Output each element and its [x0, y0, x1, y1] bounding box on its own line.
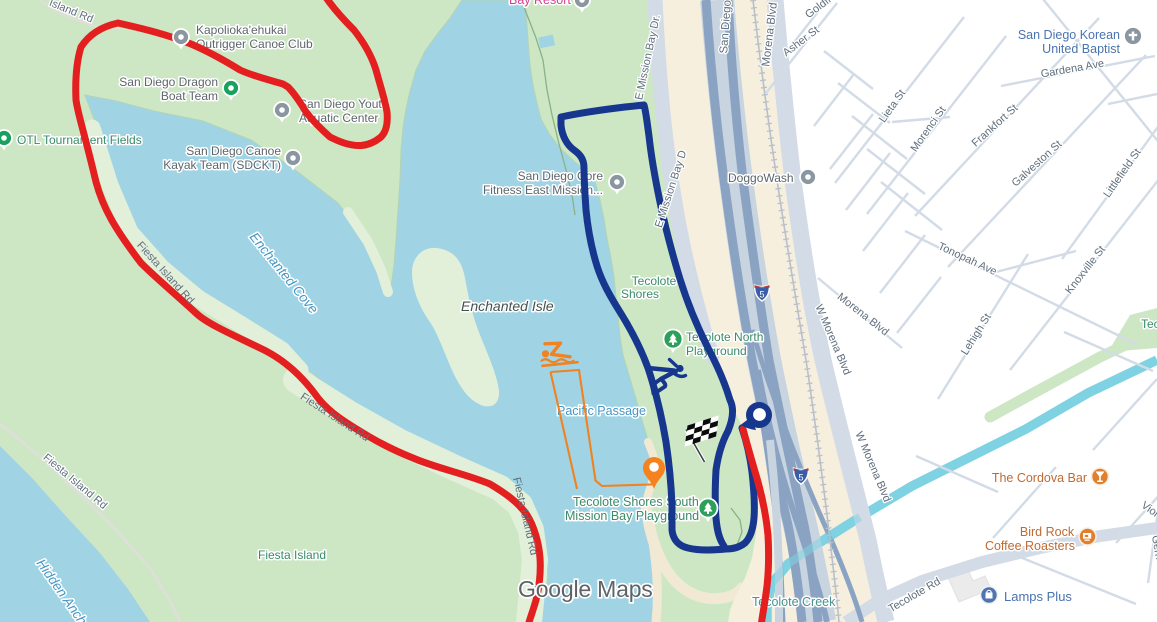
svg-text:5: 5	[798, 473, 803, 483]
svg-text:United Baptist: United Baptist	[1042, 42, 1120, 56]
svg-text:Outrigger Canoe Club: Outrigger Canoe Club	[196, 37, 313, 51]
svg-text:Fiesta Island: Fiesta Island	[258, 548, 326, 562]
svg-text:Tecolot: Tecolot	[1141, 317, 1157, 331]
svg-text:Google Maps: Google Maps	[518, 576, 653, 602]
svg-text:Coffee Roasters: Coffee Roasters	[985, 539, 1075, 553]
svg-text:Kayak Team (SDCKT): Kayak Team (SDCKT)	[163, 158, 281, 172]
svg-text:San Diego Core: San Diego Core	[518, 169, 604, 183]
svg-text:Tecolote: Tecolote	[632, 274, 677, 288]
svg-text:Bird Rock: Bird Rock	[1020, 525, 1075, 539]
svg-text:Mission Bay Playground: Mission Bay Playground	[565, 509, 699, 523]
svg-text:DoggoWash: DoggoWash	[728, 171, 794, 185]
svg-text:Bay Resort: Bay Resort	[509, 0, 571, 7]
svg-text:San Diego Canoe: San Diego Canoe	[186, 144, 281, 158]
svg-text:San Diego Dragon: San Diego Dragon	[119, 75, 218, 89]
svg-text:The Cordova Bar: The Cordova Bar	[992, 471, 1087, 485]
svg-text:Boat Team: Boat Team	[161, 89, 218, 103]
svg-text:Tecolote Shores South: Tecolote Shores South	[573, 495, 699, 509]
svg-text:Pacific Passage: Pacific Passage	[557, 404, 646, 418]
svg-text:San Diego Korean: San Diego Korean	[1018, 28, 1120, 42]
svg-text:San Diego Youth: San Diego Youth	[299, 97, 388, 111]
svg-text:5: 5	[759, 290, 764, 300]
svg-text:Shores: Shores	[621, 287, 659, 301]
svg-text:OTL Tournament Fields: OTL Tournament Fields	[17, 133, 142, 147]
svg-text:Enchanted Isle: Enchanted Isle	[461, 298, 554, 314]
svg-text:Kapolioka'ehukai: Kapolioka'ehukai	[196, 23, 286, 37]
svg-text:Lamps Plus: Lamps Plus	[1004, 589, 1072, 604]
svg-text:Playground: Playground	[686, 344, 747, 358]
